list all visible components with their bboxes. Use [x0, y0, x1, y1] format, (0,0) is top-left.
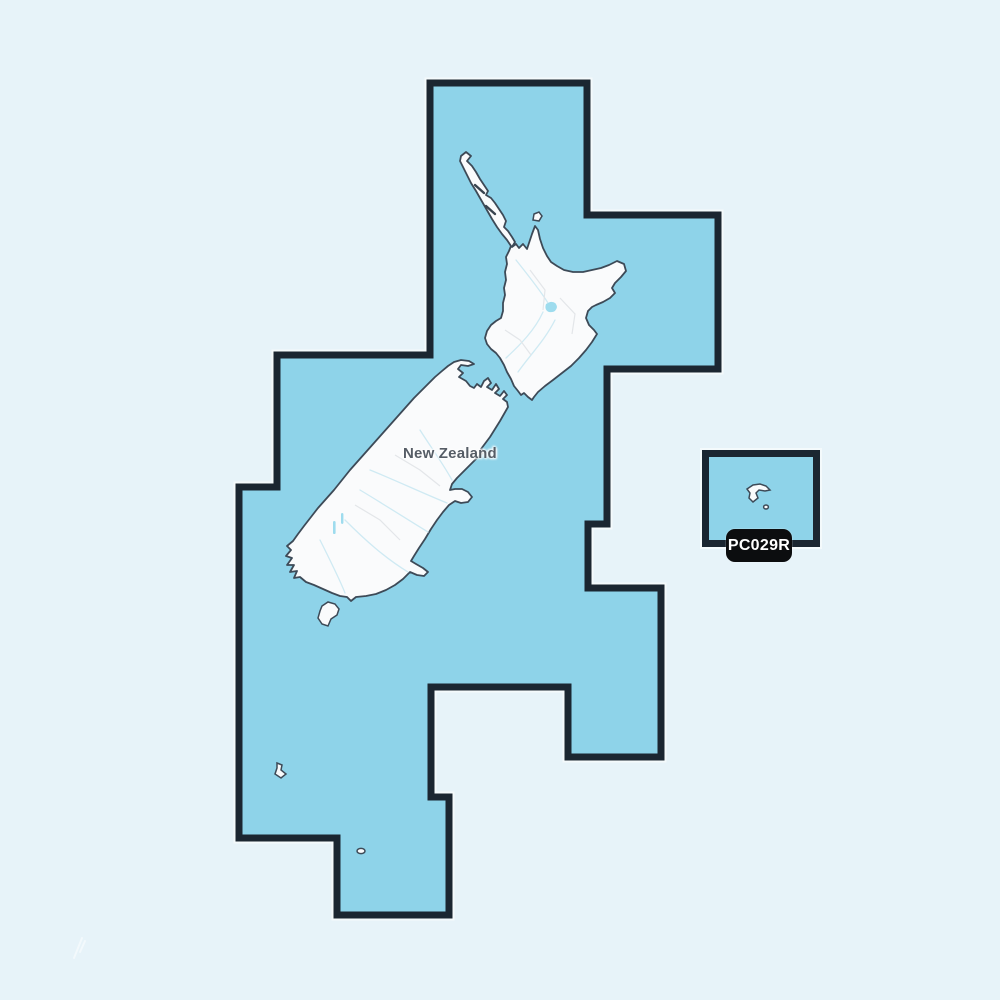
country-label: New Zealand: [403, 445, 493, 462]
great-barrier-island: [533, 212, 542, 221]
southern-lake-2: [341, 513, 343, 524]
southern-lake-1: [333, 521, 336, 534]
coverage-map-canvas: [0, 0, 1000, 1000]
snares-islet: [357, 848, 365, 853]
chart-coverage-map: New Zealand PC029R: [0, 0, 1000, 1000]
main-coverage-area: [239, 83, 718, 915]
pitt-island: [764, 505, 769, 509]
region-code-badge: PC029R: [726, 529, 792, 562]
watermark-scratch: [74, 938, 85, 958]
